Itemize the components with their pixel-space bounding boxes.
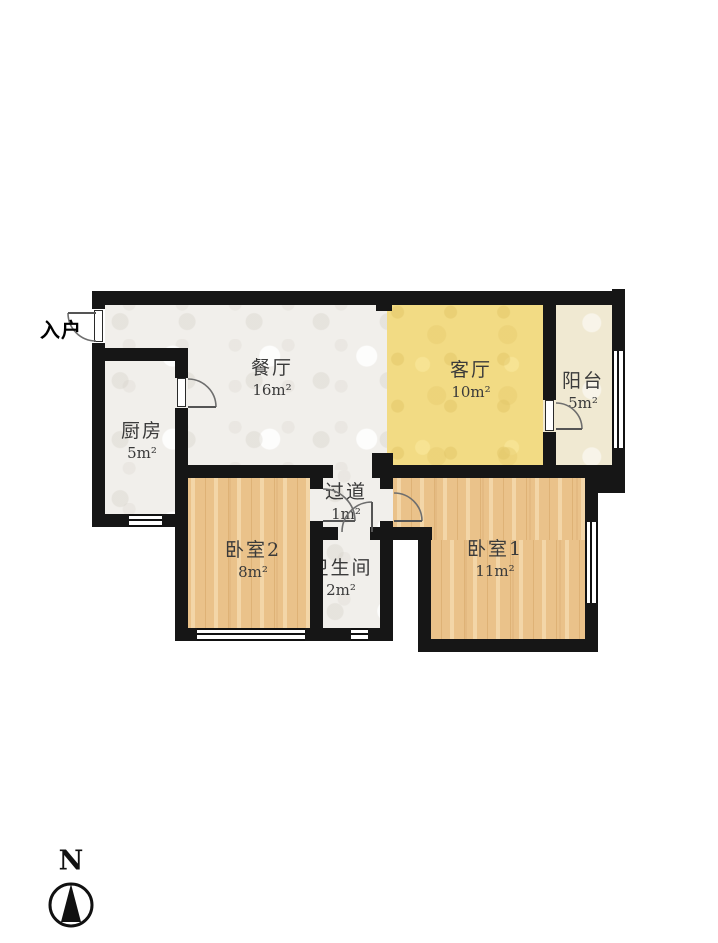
- room-area: 8m²: [225, 563, 281, 581]
- window-bathroom: [351, 628, 368, 641]
- wall: [418, 639, 598, 652]
- wall: [310, 527, 338, 540]
- window-bedroom1: [585, 522, 598, 603]
- room-name: 厨房: [121, 420, 163, 444]
- floor-plan: 餐厅 16m² 厨房 5m² 客厅 10m² 阳台 5m² 过道 1m² 卧室2…: [0, 0, 718, 943]
- window-bedroom2: [197, 628, 305, 641]
- entrance-label: 入户: [40, 314, 82, 343]
- compass-needle-icon: [61, 884, 81, 922]
- door-leaf-entrance: [94, 310, 103, 342]
- wall: [543, 291, 556, 478]
- door-gap-bathroom: [338, 527, 370, 540]
- room-area: 1m²: [325, 505, 367, 523]
- compass-icon: [50, 884, 92, 926]
- window-balcony: [612, 351, 625, 448]
- room-name: 客厅: [450, 359, 492, 383]
- room-area: 10m²: [450, 383, 492, 401]
- label-kitchen: 厨房 5m²: [121, 420, 163, 462]
- window-kitchen: [129, 514, 162, 527]
- wall: [92, 348, 188, 361]
- room-name: 卧室1: [467, 538, 523, 562]
- compass-circle: [50, 884, 92, 926]
- label-dining: 餐厅 16m²: [251, 357, 293, 399]
- room-name: 餐厅: [251, 357, 293, 381]
- label-living: 客厅 10m²: [450, 359, 492, 401]
- room-area: 16m²: [251, 381, 293, 399]
- compass-north-label: N: [59, 846, 84, 877]
- door-leaf-balcony: [545, 400, 554, 431]
- label-bedroom2: 卧室2 8m²: [225, 539, 281, 581]
- room-area: 5m²: [121, 444, 163, 462]
- door-gap-bedroom2: [310, 489, 323, 521]
- label-balcony: 阳台 5m²: [562, 370, 604, 412]
- room-area: 5m²: [562, 394, 604, 412]
- label-hallway: 过道 1m²: [325, 481, 367, 523]
- room-name: 过道: [325, 481, 367, 505]
- room-name: 阳台: [562, 370, 604, 394]
- door-gap-bedroom1: [380, 489, 393, 521]
- room-area: 11m²: [467, 562, 523, 580]
- wall: [418, 527, 431, 652]
- door-leaf-kitchen: [177, 378, 186, 407]
- room-name: 卧室2: [225, 539, 281, 563]
- label-bedroom1: 卧室1 11m²: [467, 538, 523, 580]
- wall: [376, 291, 392, 311]
